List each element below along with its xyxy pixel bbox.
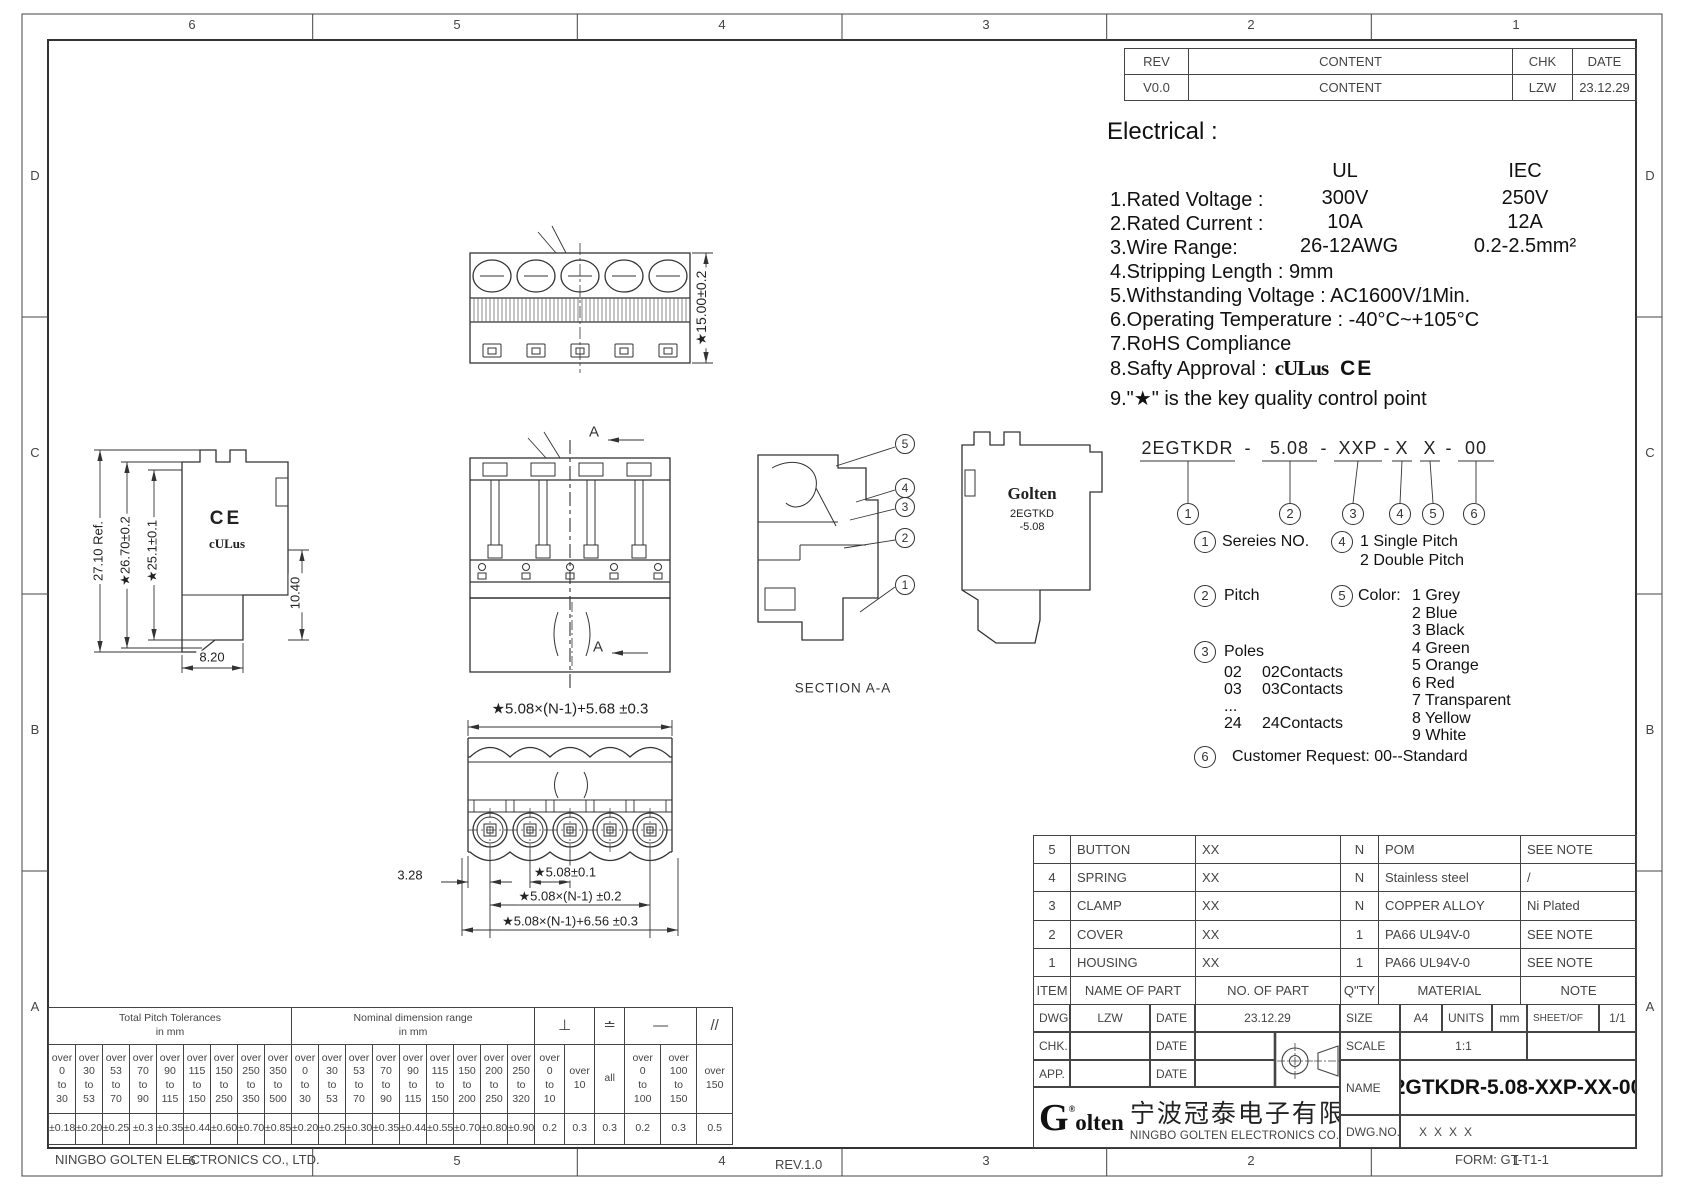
ul-column-header: UL bbox=[1300, 160, 1390, 183]
parts-table-row: 4 SPRING XX N Stainless steel / bbox=[1034, 864, 1637, 892]
range-cell: over30to53 bbox=[76, 1045, 103, 1114]
dwg-label: DWG. bbox=[1033, 1004, 1070, 1032]
color-option: 4 Green bbox=[1412, 640, 1511, 658]
zone-label-top: 3 bbox=[974, 17, 998, 37]
part-qty: 1 bbox=[1341, 920, 1379, 948]
dim-height-b: ★25.1±0.1 bbox=[146, 517, 161, 585]
part-material: PA66 UL94V-0 bbox=[1379, 920, 1521, 948]
dim-pitch: ★5.08±0.1 bbox=[531, 866, 599, 881]
company-name-en: NINGBO GOLTEN ELECTRONICS CO., LTD. bbox=[1130, 1130, 1340, 1142]
spec-iec-value: 0.2-2.5mm² bbox=[1462, 235, 1588, 258]
range-cell: over150to250 bbox=[211, 1045, 238, 1114]
range-cell: over350to500 bbox=[265, 1045, 292, 1114]
callout-circle-4: 4 bbox=[1389, 503, 1411, 525]
spec-label: 2.Rated Current : bbox=[1110, 213, 1263, 236]
color-option: 6 Red bbox=[1412, 675, 1511, 693]
date-value: 23.12.29 bbox=[1573, 75, 1637, 101]
part-number-segment: - bbox=[1241, 438, 1255, 460]
size-label: SIZE bbox=[1340, 1004, 1400, 1032]
part-item: 2 bbox=[1034, 920, 1071, 948]
range-cell: over53to70 bbox=[346, 1045, 373, 1114]
balloon-3: 3 bbox=[895, 497, 915, 517]
color-option: 5 Orange bbox=[1412, 657, 1511, 675]
tolerance-value: ±0.55 bbox=[427, 1114, 454, 1145]
part-note: Ni Plated bbox=[1521, 892, 1637, 920]
range-cell: over100to150 bbox=[661, 1045, 697, 1114]
view-part-series: 2EGTKD bbox=[992, 508, 1072, 520]
tolerance-value: ±0.85 bbox=[265, 1114, 292, 1145]
iec-column-header: IEC bbox=[1462, 160, 1588, 183]
color-option: 7 Transparent bbox=[1412, 692, 1511, 710]
rev-value: V0.0 bbox=[1125, 75, 1189, 101]
part-number-segment: X bbox=[1422, 438, 1438, 460]
parts-table-header-row: ITEM NAME OF PART NO. OF PART Q"TY MATER… bbox=[1034, 976, 1637, 1004]
zone-label-top: 5 bbox=[445, 17, 469, 37]
scale-value: 1:1 bbox=[1400, 1032, 1527, 1060]
range-cell: over250to320 bbox=[508, 1045, 535, 1114]
golten-logo: G®olten bbox=[1039, 1099, 1124, 1137]
geo-symbol-parallelism: // bbox=[697, 1008, 733, 1045]
tolerance-table: Total Pitch Tolerancesin mm Nominal dime… bbox=[48, 1007, 733, 1145]
chk-label: CHK. bbox=[1033, 1032, 1070, 1060]
dim-ref-height: 27.10 Ref. bbox=[92, 518, 107, 584]
app-date-blank bbox=[1195, 1060, 1275, 1087]
tolerance-value: ±0.3 bbox=[130, 1114, 157, 1145]
spec-label: 3.Wire Range: bbox=[1110, 237, 1238, 260]
range-cell: over200to250 bbox=[481, 1045, 508, 1114]
tolerance-value: 0.2 bbox=[625, 1114, 661, 1145]
company-cell: G®olten 宁波冠泰电子有限公司 NINGBO GOLTEN ELECTRO… bbox=[1033, 1087, 1340, 1148]
dim-edge-offset: 3.28 bbox=[394, 869, 425, 884]
part-material: COPPER ALLOY bbox=[1379, 892, 1521, 920]
chk-by-blank bbox=[1070, 1032, 1150, 1060]
callout-circle-5: 5 bbox=[1422, 503, 1444, 525]
part-note: SEE NOTE bbox=[1521, 836, 1637, 864]
tolerance-value-row: ±0.18±0.20±0.25±0.3±0.35±0.44±0.60±0.70±… bbox=[49, 1114, 733, 1145]
part-no: XX bbox=[1196, 948, 1341, 976]
poles-option: ... bbox=[1224, 698, 1343, 715]
legend-poles-label: Poles bbox=[1224, 643, 1264, 661]
zone-label-right: B bbox=[1638, 722, 1662, 742]
spec-line: 4.Stripping Length : 9mm bbox=[1110, 261, 1333, 284]
range-cell: all bbox=[595, 1045, 625, 1114]
zone-label-bottom: 3 bbox=[974, 1153, 998, 1173]
legend-callout-1: 1 bbox=[1194, 531, 1216, 553]
dim-bottom-top-span: ★5.08×(N-1)+5.68 ±0.3 bbox=[489, 700, 652, 717]
zone-label-right: C bbox=[1638, 445, 1662, 465]
range-cell: over0to30 bbox=[292, 1045, 319, 1114]
golten-logo-small: Golten bbox=[992, 485, 1072, 502]
footer-company: NINGBO GOLTEN ELECTRONICS CO., LTD. bbox=[55, 1152, 320, 1167]
col-material: MATERIAL bbox=[1379, 976, 1521, 1004]
zone-label-bottom: 4 bbox=[710, 1153, 734, 1173]
nominal-range-header: Nominal dimension rangein mm bbox=[292, 1008, 535, 1045]
tolerance-value: ±0.80 bbox=[481, 1114, 508, 1145]
company-name-cn: 宁波冠泰电子有限公司 bbox=[1130, 1094, 1340, 1130]
tolerance-value: ±0.25 bbox=[319, 1114, 346, 1145]
part-qty: N bbox=[1341, 836, 1379, 864]
scale-blank bbox=[1527, 1032, 1636, 1060]
part-name: SPRING bbox=[1071, 864, 1196, 892]
app-by-blank bbox=[1070, 1060, 1150, 1087]
scale-label: SCALE bbox=[1340, 1032, 1400, 1060]
part-item: 3 bbox=[1034, 892, 1071, 920]
part-no: XX bbox=[1196, 836, 1341, 864]
part-number-leaders bbox=[1140, 461, 1494, 503]
dim-foot-width: 8.20 bbox=[196, 651, 227, 666]
part-no: XX bbox=[1196, 864, 1341, 892]
range-cell: over53to70 bbox=[103, 1045, 130, 1114]
spec-ul-value: 26-12AWG bbox=[1300, 235, 1390, 258]
parts-table-row: 2 COVER XX 1 PA66 UL94V-0 SEE NOTE bbox=[1034, 920, 1637, 948]
legend-customer-label: Customer Request: 00--Standard bbox=[1232, 748, 1468, 766]
tolerance-value: 0.3 bbox=[595, 1114, 625, 1145]
legend-callout-3: 3 bbox=[1194, 641, 1216, 663]
poles-option-list: 0202Contacts0303Contacts...2424Contacts bbox=[1224, 664, 1343, 732]
geo-symbol-perpendicularity: ⊥ bbox=[535, 1008, 595, 1045]
callout-circle-6: 6 bbox=[1463, 503, 1485, 525]
section-marker-a-top: A bbox=[589, 424, 599, 441]
part-number-segment: - bbox=[1380, 438, 1394, 460]
spec-line: 6.Operating Temperature : -40°C~+105°C bbox=[1110, 309, 1479, 332]
range-cell: over10 bbox=[565, 1045, 595, 1114]
color-option: 3 Black bbox=[1412, 622, 1511, 640]
callout-circle-1: 1 bbox=[1177, 503, 1199, 525]
spec-ul-value: 10A bbox=[1300, 211, 1390, 234]
tolerance-table-grid: Total Pitch Tolerancesin mm Nominal dime… bbox=[48, 1007, 733, 1145]
dim-lower-height: 10.40 bbox=[289, 574, 304, 613]
view-part-pitch: -5.08 bbox=[992, 521, 1072, 533]
dwg-date-value: 23.12.29 bbox=[1195, 1004, 1340, 1032]
range-cell: over0to100 bbox=[625, 1045, 661, 1114]
safety-approval-line: 8.Safty Approval :cULusCE bbox=[1110, 356, 1373, 381]
tolerance-value: 0.2 bbox=[535, 1114, 565, 1145]
tolerance-value: 0.3 bbox=[565, 1114, 595, 1145]
range-cell: over0to30 bbox=[49, 1045, 76, 1114]
sheet-label: SHEET/OF bbox=[1527, 1004, 1599, 1032]
legend-pitch-option: 2 Double Pitch bbox=[1360, 552, 1464, 570]
tolerance-value: ±0.35 bbox=[157, 1114, 184, 1145]
range-cell: over90to115 bbox=[400, 1045, 427, 1114]
part-number-segment: - bbox=[1317, 438, 1331, 460]
spec-label: 1.Rated Voltage : bbox=[1110, 189, 1263, 212]
part-note: SEE NOTE bbox=[1521, 920, 1637, 948]
ul-mark-icon: cULus bbox=[192, 536, 262, 552]
tolerance-value: ±0.70 bbox=[454, 1114, 481, 1145]
color-option-list: 1 Grey2 Blue3 Black4 Green5 Orange6 Red7… bbox=[1412, 587, 1511, 745]
part-name: HOUSING bbox=[1071, 948, 1196, 976]
part-number-segment: 2EGTKDR bbox=[1140, 438, 1235, 460]
side-view2-linework bbox=[962, 432, 1102, 643]
ce-mark-icon: CE bbox=[1340, 357, 1373, 380]
dim-height-a: ★26.70±0.2 bbox=[119, 513, 134, 588]
range-cell: over250to350 bbox=[238, 1045, 265, 1114]
legend-callout-6: 6 bbox=[1194, 746, 1216, 768]
part-name: COVER bbox=[1071, 920, 1196, 948]
col-qty: Q"TY bbox=[1341, 976, 1379, 1004]
revision-row: V0.0 CONTENT LZW 23.12.29 bbox=[1125, 75, 1637, 101]
zone-label-left: D bbox=[23, 168, 47, 188]
zone-label-left: C bbox=[23, 445, 47, 465]
zone-label-top: 4 bbox=[710, 17, 734, 37]
spec-iec-value: 250V bbox=[1462, 187, 1588, 210]
part-note: / bbox=[1521, 864, 1637, 892]
spec-line: 8.Safty Approval : bbox=[1110, 358, 1267, 380]
part-material: PA66 UL94V-0 bbox=[1379, 948, 1521, 976]
part-number-segment: 5.08 bbox=[1262, 438, 1317, 460]
section-marker-a-bottom: A bbox=[593, 639, 603, 656]
part-material: Stainless steel bbox=[1379, 864, 1521, 892]
spec-line: 5.Withstanding Voltage : AC1600V/1Min. bbox=[1110, 285, 1470, 308]
units-label: UNITS bbox=[1442, 1004, 1492, 1032]
sheet-value: 1/1 bbox=[1599, 1004, 1636, 1032]
footer-form: FORM: GT-T1-1 bbox=[1455, 1152, 1549, 1167]
range-cell: over30to53 bbox=[319, 1045, 346, 1114]
part-qty: 1 bbox=[1341, 948, 1379, 976]
part-note: SEE NOTE bbox=[1521, 948, 1637, 976]
legend-callout-2: 2 bbox=[1194, 585, 1216, 607]
range-cell: over90to115 bbox=[157, 1045, 184, 1114]
projection-symbol-cell bbox=[1275, 1032, 1340, 1087]
color-option: 2 Blue bbox=[1412, 605, 1511, 623]
zone-label-bottom: 2 bbox=[1239, 1153, 1263, 1173]
part-item: 4 bbox=[1034, 864, 1071, 892]
poles-option: 2424Contacts bbox=[1224, 715, 1343, 732]
poles-option: 0202Contacts bbox=[1224, 664, 1343, 681]
col-no: NO. OF PART bbox=[1196, 976, 1341, 1004]
footer-revision: REV.1.0 bbox=[775, 1157, 822, 1172]
revision-header-row: REV CONTENT CHK DATE bbox=[1125, 49, 1637, 75]
zone-label-right: A bbox=[1638, 999, 1662, 1019]
section-view-linework bbox=[758, 447, 895, 640]
content-value: CONTENT bbox=[1189, 75, 1513, 101]
part-number-segment: 00 bbox=[1460, 438, 1492, 460]
tolerance-value: ±0.18 bbox=[49, 1114, 76, 1145]
zone-label-left: B bbox=[23, 722, 47, 742]
col-note: NOTE bbox=[1521, 976, 1637, 1004]
geo-symbol-parallel-plane: ≐ bbox=[595, 1008, 625, 1045]
part-number-segment: XXP bbox=[1334, 438, 1382, 460]
legend-series-label: Sereies NO. bbox=[1222, 533, 1309, 551]
part-qty: N bbox=[1341, 892, 1379, 920]
ul-mark-icon: cULus bbox=[1275, 356, 1328, 380]
dim-overall-width: ★5.08×(N-1)+6.56 ±0.3 bbox=[499, 915, 641, 930]
geo-symbol-straightness: — bbox=[625, 1008, 697, 1045]
name-label: NAME bbox=[1340, 1060, 1400, 1115]
parts-table-row: 3 CLAMP XX N COPPER ALLOY Ni Plated bbox=[1034, 892, 1637, 920]
parts-table-row: 1 HOUSING XX 1 PA66 UL94V-0 SEE NOTE bbox=[1034, 948, 1637, 976]
range-cell: over150 bbox=[697, 1045, 733, 1114]
dwg-by-value: LZW bbox=[1070, 1004, 1150, 1032]
range-cell: over0to10 bbox=[535, 1045, 565, 1114]
range-cell: over115to150 bbox=[427, 1045, 454, 1114]
date-col-header: DATE bbox=[1573, 49, 1637, 75]
tolerance-value: 0.3 bbox=[661, 1114, 697, 1145]
legend-callout-5: 5 bbox=[1331, 585, 1353, 607]
part-item: 1 bbox=[1034, 948, 1071, 976]
tolerance-range-row: over0to30over30to53over53to70over70to90o… bbox=[49, 1045, 733, 1114]
spec-iec-value: 12A bbox=[1462, 211, 1588, 234]
range-cell: over70to90 bbox=[130, 1045, 157, 1114]
chk-value: LZW bbox=[1513, 75, 1573, 101]
range-cell: over150to200 bbox=[454, 1045, 481, 1114]
zone-label-right: D bbox=[1638, 168, 1662, 188]
front-view-linework bbox=[470, 432, 670, 690]
tolerance-value: ±0.20 bbox=[292, 1114, 319, 1145]
range-cell: over115to150 bbox=[184, 1045, 211, 1114]
tolerance-value: ±0.20 bbox=[76, 1114, 103, 1145]
part-number-segment: X bbox=[1394, 438, 1410, 460]
chk-date-blank bbox=[1195, 1032, 1275, 1060]
tolerance-value: ±0.70 bbox=[238, 1114, 265, 1145]
legend-pitch-option: 1 Single Pitch bbox=[1360, 533, 1458, 551]
pitch-tolerance-header: Total Pitch Tolerancesin mm bbox=[49, 1008, 292, 1045]
tolerance-value: ±0.60 bbox=[211, 1114, 238, 1145]
part-item: 5 bbox=[1034, 836, 1071, 864]
tolerance-value: ±0.44 bbox=[400, 1114, 427, 1145]
ce-mark-icon: CE bbox=[196, 508, 256, 530]
date-label: DATE bbox=[1150, 1060, 1195, 1087]
dim-top-view-height: ★15.00±0.2 bbox=[693, 268, 709, 349]
dim-contact-span: ★5.08×(N-1) ±0.2 bbox=[516, 890, 625, 905]
poles-option: 0303Contacts bbox=[1224, 681, 1343, 698]
balloon-1: 1 bbox=[895, 575, 915, 595]
spec-ul-value: 300V bbox=[1300, 187, 1390, 210]
zone-label-left: A bbox=[23, 999, 47, 1019]
zone-label-top: 6 bbox=[180, 17, 204, 37]
chk-col-header: CHK bbox=[1513, 49, 1573, 75]
tolerance-value: ±0.30 bbox=[346, 1114, 373, 1145]
tolerance-value: 0.5 bbox=[697, 1114, 733, 1145]
top-view-linework bbox=[470, 226, 713, 373]
tolerance-value: ±0.90 bbox=[508, 1114, 535, 1145]
electrical-title: Electrical : bbox=[1107, 118, 1218, 146]
color-option: 1 Grey bbox=[1412, 587, 1511, 605]
date-label: DATE bbox=[1150, 1004, 1195, 1032]
engineering-drawing-sheet: 665544332211DDCCBBAA NINGBO GOLTEN ELECT… bbox=[0, 0, 1684, 1190]
color-option: 8 Yellow bbox=[1412, 710, 1511, 728]
col-name: NAME OF PART bbox=[1071, 976, 1196, 1004]
part-qty: N bbox=[1341, 864, 1379, 892]
part-name: BUTTON bbox=[1071, 836, 1196, 864]
part-material: POM bbox=[1379, 836, 1521, 864]
parts-list-table: 5 BUTTON XX N POM SEE NOTE 4 SPRING XX N… bbox=[1033, 835, 1637, 1005]
tolerance-value: ±0.35 bbox=[373, 1114, 400, 1145]
part-name: CLAMP bbox=[1071, 892, 1196, 920]
tolerance-value: ±0.44 bbox=[184, 1114, 211, 1145]
quality-control-line: 9."★" is the key quality control point bbox=[1110, 386, 1427, 411]
callout-circle-2: 2 bbox=[1279, 503, 1301, 525]
app-label: APP. bbox=[1033, 1060, 1070, 1087]
units-value: mm bbox=[1492, 1004, 1527, 1032]
parts-table-row: 5 BUTTON XX N POM SEE NOTE bbox=[1034, 836, 1637, 864]
legend-color-label: Color: bbox=[1358, 587, 1401, 605]
bottom-view-linework bbox=[441, 720, 678, 938]
color-option: 9 White bbox=[1412, 727, 1511, 745]
dwgno-value: XXXX bbox=[1400, 1115, 1636, 1148]
zone-label-top: 2 bbox=[1239, 17, 1263, 37]
balloon-5: 5 bbox=[895, 434, 915, 454]
legend-callout-4: 4 bbox=[1331, 531, 1353, 553]
part-no: XX bbox=[1196, 920, 1341, 948]
range-cell: over70to90 bbox=[373, 1045, 400, 1114]
balloon-4: 4 bbox=[895, 478, 915, 498]
section-view-label: SECTION A-A bbox=[795, 681, 892, 696]
content-col-header: CONTENT bbox=[1189, 49, 1513, 75]
legend-pitch-label: Pitch bbox=[1224, 587, 1260, 605]
part-no: XX bbox=[1196, 892, 1341, 920]
dwgno-label: DWG.NO. bbox=[1340, 1115, 1400, 1148]
size-value: A4 bbox=[1400, 1004, 1442, 1032]
part-number-segment: - bbox=[1442, 438, 1456, 460]
spec-line: 7.RoHS Compliance bbox=[1110, 333, 1291, 356]
col-item: ITEM bbox=[1034, 976, 1071, 1004]
balloon-2: 2 bbox=[895, 528, 915, 548]
zone-label-top: 1 bbox=[1504, 17, 1528, 37]
callout-circle-3: 3 bbox=[1342, 503, 1364, 525]
date-label: DATE bbox=[1150, 1032, 1195, 1060]
part-name-value: 2GTKDR-5.08-XXP-XX-00 bbox=[1400, 1060, 1636, 1115]
tolerance-header-row: Total Pitch Tolerancesin mm Nominal dime… bbox=[49, 1008, 733, 1045]
zone-label-bottom: 5 bbox=[445, 1153, 469, 1173]
revision-table: REV CONTENT CHK DATE V0.0 CONTENT LZW 23… bbox=[1124, 48, 1637, 101]
tolerance-value: ±0.25 bbox=[103, 1114, 130, 1145]
rev-col-header: REV bbox=[1125, 49, 1189, 75]
